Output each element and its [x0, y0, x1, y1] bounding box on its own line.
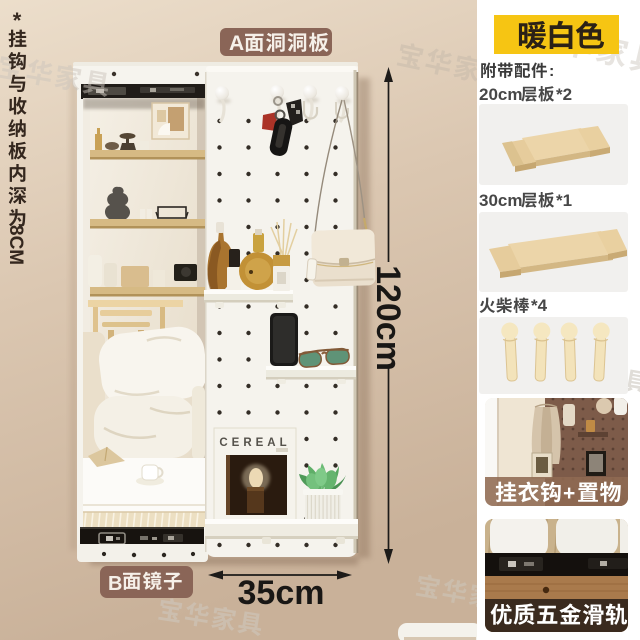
svg-text:35cm: 35cm: [238, 574, 325, 612]
svg-text:120cm: 120cm: [369, 265, 407, 371]
svg-text:30cm: 30cm: [479, 191, 522, 210]
svg-text:*1: *1: [556, 191, 572, 210]
svg-text:*2: *2: [556, 85, 572, 104]
svg-text:*4: *4: [531, 296, 548, 315]
svg-text:8CM: 8CM: [5, 225, 26, 265]
svg-text:B: B: [108, 573, 122, 595]
svg-text:CEREAL: CEREAL: [219, 437, 290, 449]
svg-text:*: *: [13, 8, 22, 33]
svg-text:+: +: [563, 482, 575, 505]
svg-text:A: A: [229, 32, 244, 55]
svg-text::: :: [549, 63, 554, 80]
svg-text:20cm: 20cm: [479, 85, 522, 104]
